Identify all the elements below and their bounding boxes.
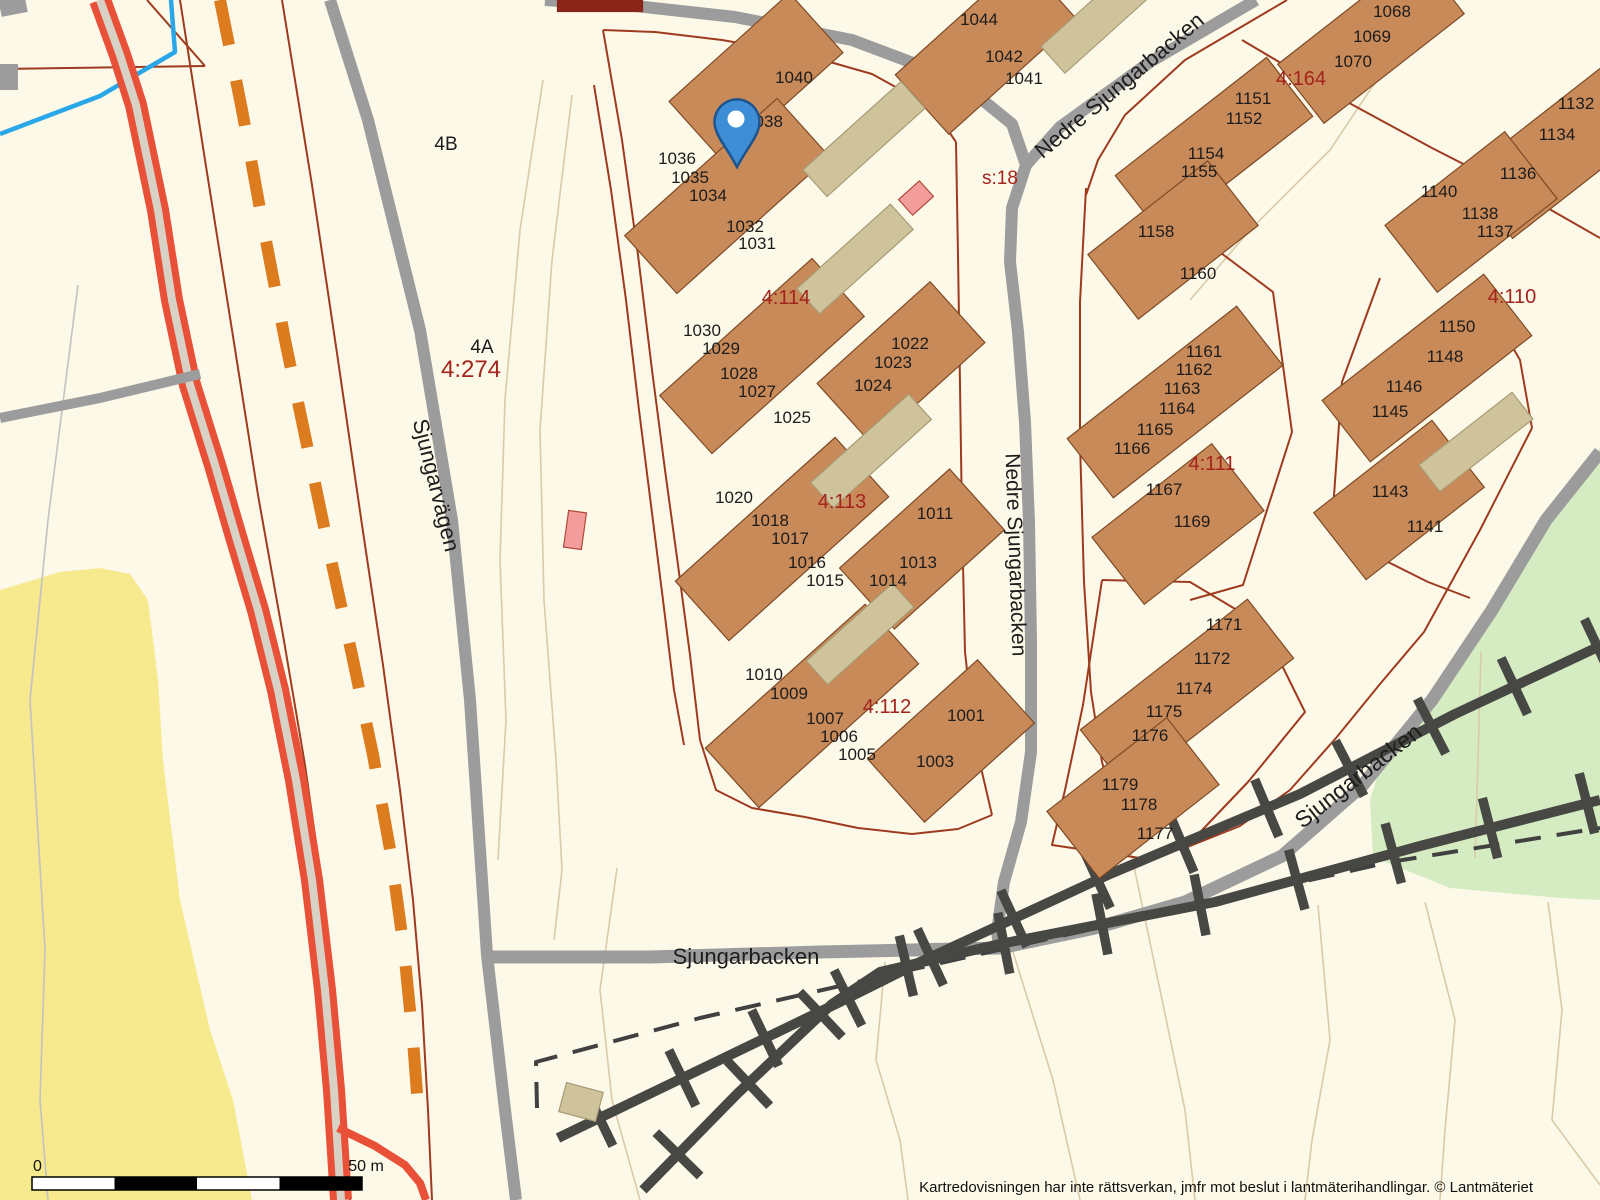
parcel-designation-label: 4:112 xyxy=(863,696,912,718)
building-number-label: 1136 xyxy=(1500,164,1537,183)
building-number-label: 1177 xyxy=(1137,824,1174,843)
building-number-label: 1179 xyxy=(1102,775,1139,794)
building-number-label: 1167 xyxy=(1146,480,1183,499)
scale-bar-segment xyxy=(280,1177,363,1190)
building-number-label: 1169 xyxy=(1174,512,1211,531)
street-name-label: Sjungarbacken xyxy=(673,944,820,969)
building-number-label: 1151 xyxy=(1235,89,1272,108)
building-number-label: 1152 xyxy=(1226,109,1263,128)
road xyxy=(0,3,26,8)
building-number-label: 1016 xyxy=(788,553,826,572)
building-number-label: 1036 xyxy=(658,149,696,168)
building-number-label: 1022 xyxy=(891,334,929,353)
scale-bar-segment xyxy=(115,1177,198,1190)
parcel-designation-label: 4:274 xyxy=(441,356,501,383)
building-number-label: 1146 xyxy=(1386,377,1423,396)
building-number-label: 1174 xyxy=(1176,679,1213,698)
building-number-label: 1070 xyxy=(1334,52,1372,71)
building-number-label: 1029 xyxy=(702,339,740,358)
scale-bar-start-label: 0 xyxy=(33,1158,42,1175)
building-number-label: 1003 xyxy=(916,752,954,771)
parcel-designation-label: s:18 xyxy=(982,168,1018,189)
scale-bar-end-label: 50 m xyxy=(348,1158,384,1175)
building-number-label: 1140 xyxy=(1421,182,1458,201)
map-pin-dot xyxy=(728,111,745,128)
building-number-label: 1176 xyxy=(1132,726,1169,745)
parcel-designation-label: 4:113 xyxy=(818,491,867,513)
building-number-label: 1020 xyxy=(715,488,753,507)
building-number-label: 1175 xyxy=(1146,702,1183,721)
building-number-label: 1041 xyxy=(1005,69,1043,88)
building-number-label: 1042 xyxy=(985,47,1023,66)
map-viewport[interactable]: 1040103810361035103410321031103010291028… xyxy=(0,0,1600,1200)
address-label: 4A xyxy=(470,337,494,358)
building-number-label: 1027 xyxy=(738,382,776,401)
building-number-label: 1145 xyxy=(1372,402,1409,421)
building-number-label: 1035 xyxy=(671,168,709,187)
building-number-label: 1154 xyxy=(1188,144,1225,163)
parcel-designation-label: 4:111 xyxy=(1188,453,1235,475)
building-number-label: 1007 xyxy=(806,709,844,728)
building-number-label: 1165 xyxy=(1137,420,1174,439)
building-number-label: 1166 xyxy=(1114,439,1151,458)
building-number-label: 1148 xyxy=(1427,347,1464,366)
map-canvas[interactable]: 1040103810361035103410321031103010291028… xyxy=(0,0,1600,1200)
building-number-label: 1155 xyxy=(1181,162,1218,181)
building-number-label: 1040 xyxy=(775,68,813,87)
parcel-designation-label: 4:164 xyxy=(1276,68,1326,90)
building-number-label: 1006 xyxy=(820,727,858,746)
attribution-text: Kartredovisningen har inte rättsverkan, … xyxy=(919,1179,1534,1196)
building-number-label: 1143 xyxy=(1372,482,1409,501)
building-number-label: 1160 xyxy=(1180,264,1217,283)
building-number-label: 1132 xyxy=(1558,94,1595,113)
building-number-label: 1009 xyxy=(770,684,808,703)
building-number-label: 1001 xyxy=(947,706,985,725)
building-number-label: 1010 xyxy=(745,665,783,684)
building-number-label: 1068 xyxy=(1373,2,1411,21)
building-number-label: 1163 xyxy=(1164,379,1201,398)
building-number-label: 1134 xyxy=(1539,125,1576,144)
building-number-label: 1017 xyxy=(771,529,809,548)
building-number-label: 1178 xyxy=(1121,795,1158,814)
building-number-label: 1011 xyxy=(917,504,954,523)
building-number-label: 1138 xyxy=(1462,204,1499,223)
building-number-label: 1161 xyxy=(1186,342,1223,361)
building-number-label: 1013 xyxy=(899,553,937,572)
building-number-label: 1141 xyxy=(1407,517,1444,536)
building-number-label: 1015 xyxy=(806,571,844,590)
building-number-label: 1171 xyxy=(1206,615,1243,634)
building-number-label: 1031 xyxy=(738,234,776,253)
building-number-label: 1172 xyxy=(1194,649,1231,668)
building-number-label: 1150 xyxy=(1439,317,1476,336)
building-number-label: 1023 xyxy=(874,353,912,372)
building-number-label: 1137 xyxy=(1477,222,1514,241)
building-number-label: 1034 xyxy=(689,186,727,205)
building-number-label: 1162 xyxy=(1176,360,1213,379)
building-number-label: 1069 xyxy=(1353,27,1391,46)
building-number-label: 1014 xyxy=(869,571,907,590)
building-number-label: 1030 xyxy=(683,321,721,340)
building-number-label: 1018 xyxy=(751,511,789,530)
building-number-label: 1024 xyxy=(854,376,892,395)
building-number-label: 1005 xyxy=(838,745,876,764)
building-number-label: 1025 xyxy=(773,408,811,427)
building-number-label: 1028 xyxy=(720,364,758,383)
address-label: 4B xyxy=(434,134,457,155)
building-number-label: 1164 xyxy=(1159,399,1196,418)
building-number-label: 1158 xyxy=(1138,222,1175,241)
parcel-designation-label: 4:110 xyxy=(1488,286,1537,308)
building-dark xyxy=(558,0,643,12)
parcel-designation-label: 4:114 xyxy=(762,287,811,309)
building-number-label: 1044 xyxy=(960,10,998,29)
